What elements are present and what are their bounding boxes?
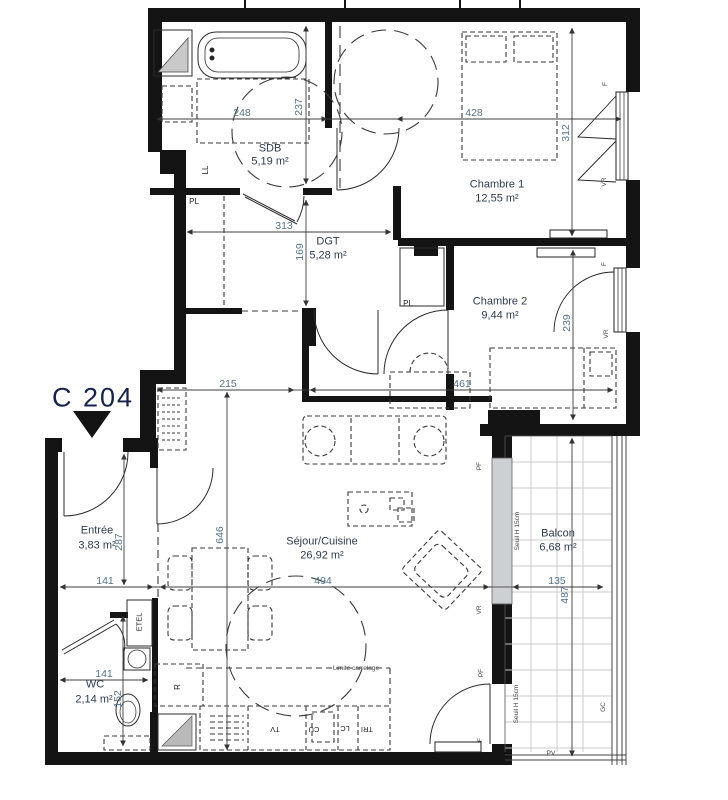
- room-area-chambre1: 12,55 m²: [475, 194, 518, 205]
- bed-chambre2: [490, 348, 616, 408]
- dim-balcon-depth: 487: [560, 586, 571, 604]
- room-area-wc: 2,14 m²: [75, 695, 112, 706]
- dim-dgt-depth: 169: [295, 243, 306, 261]
- dim-balcon-width: 135: [548, 576, 566, 587]
- turning-circles: [226, 26, 438, 716]
- bed-chambre1: [462, 32, 557, 160]
- room-area-dgt: 5,28 m²: [309, 251, 346, 262]
- room-label-balcon: Balcon: [541, 529, 575, 540]
- armchair: [401, 529, 483, 611]
- room-area-entree: 3,83 m²: [78, 541, 115, 552]
- dim-wc-width: 141: [95, 669, 113, 680]
- coffee-table: [348, 492, 412, 526]
- etel-label: ETEL: [135, 613, 143, 632]
- limite-carrelage-label: Limite carrelage: [333, 666, 379, 673]
- fridge-label: R: [174, 684, 182, 690]
- desk-chair: [410, 353, 448, 372]
- room-label-wc: WC: [86, 680, 104, 691]
- dishwasher-label: LC: [340, 724, 350, 732]
- dim-ch1-depth: 312: [561, 124, 572, 142]
- furniture: [104, 32, 616, 750]
- room-area-balcon: 6,68 m²: [539, 543, 576, 554]
- dim-dgt-width: 313: [275, 221, 293, 232]
- pv-label: PV: [547, 751, 556, 758]
- dining-table: [192, 548, 248, 650]
- radiators: [435, 230, 607, 752]
- window-vr-label-2: VR: [604, 329, 611, 338]
- dim-ch2-width: 461: [453, 379, 471, 390]
- pl-closet: [400, 248, 444, 306]
- dim-entree-width: 141: [96, 576, 114, 587]
- floor-plan: C 204 SDB 5,19 m² Chambre 1 12,55 m² Cha…: [0, 0, 728, 800]
- window-f-label-2: F: [602, 262, 609, 266]
- gc-label: GC: [601, 702, 608, 712]
- dim-ch1-width: 428: [465, 108, 483, 119]
- limite-carrelage-line: [186, 668, 390, 706]
- room-label-chambre1: Chambre 1: [470, 180, 524, 191]
- window-f-label-3: F: [478, 738, 485, 742]
- dim-sejour-depth: 646: [215, 526, 226, 544]
- window-f-label-1: F: [603, 82, 610, 86]
- door-pf-label-1: PF: [477, 462, 484, 470]
- tri-label: TRI: [361, 725, 373, 733]
- dim-wc-depth: 152: [113, 690, 124, 708]
- washing-machine: [162, 86, 192, 122]
- room-label-sejour: Séjour/Cuisine: [286, 537, 358, 548]
- seuil-label-1: Seuil H 15cm: [515, 512, 522, 551]
- closet-label-sdb: PL: [189, 198, 199, 206]
- apartment-title: C 204: [52, 385, 134, 412]
- cooktop-label: CU: [309, 725, 320, 733]
- seuil-label-2: Seuil H 15cm: [514, 685, 521, 724]
- window-vr-label-3: VR: [477, 605, 484, 614]
- dim-ch2-depth: 239: [562, 314, 573, 332]
- dim-hall-left: 215: [219, 379, 237, 390]
- closet-label-dgt: PL: [403, 300, 413, 308]
- room-area-sdb: 5,19 m²: [251, 157, 288, 168]
- washing-machine-label: LL: [202, 166, 210, 175]
- room-label-entree: Entrée: [81, 526, 113, 537]
- door-pf-label-2: PF: [479, 669, 486, 677]
- room-area-sejour: 26,92 m²: [300, 551, 343, 562]
- entry-arrow-icon: [73, 411, 111, 438]
- dim-sdb-width: 248: [233, 108, 251, 119]
- room-label-dgt: DGT: [316, 237, 339, 248]
- dim-sdb-depth: 237: [294, 98, 305, 116]
- room-area-chambre2: 9,44 m²: [481, 311, 518, 322]
- sofa: [303, 416, 446, 464]
- dim-entree-depth: 287: [114, 533, 125, 551]
- window-vr-label-1: VR: [602, 177, 609, 186]
- dim-sejour-width: 494: [314, 576, 332, 587]
- room-label-sdb: SDB: [259, 144, 282, 155]
- tv-label: TV: [270, 725, 280, 733]
- bay-window: [492, 458, 512, 604]
- room-label-chambre2: Chambre 2: [473, 297, 527, 308]
